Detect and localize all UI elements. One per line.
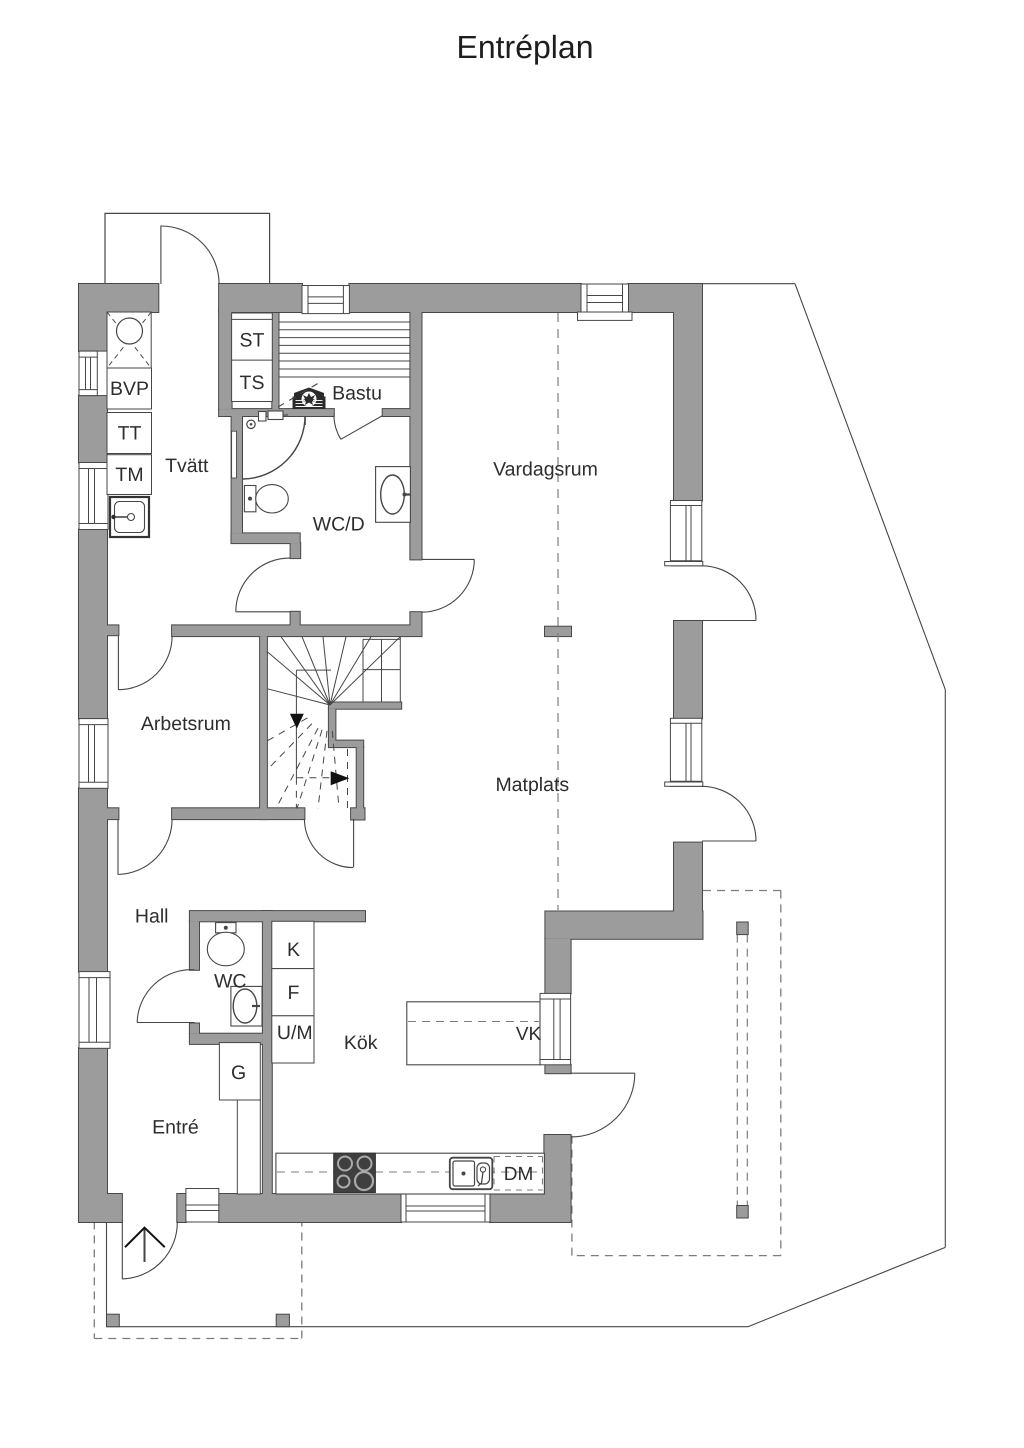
svg-text:Hall: Hall [135, 906, 169, 928]
svg-text:G: G [231, 1062, 246, 1084]
svg-text:WC/D: WC/D [313, 514, 365, 536]
svg-text:Tvätt: Tvätt [165, 455, 209, 477]
svg-text:U/M: U/M [277, 1022, 313, 1044]
svg-text:K: K [287, 939, 300, 961]
svg-text:Bastu: Bastu [332, 383, 382, 405]
svg-text:Entréplan: Entréplan [457, 29, 594, 65]
svg-text:WC: WC [214, 971, 247, 993]
svg-text:VK: VK [516, 1024, 542, 1045]
svg-text:Kök: Kök [344, 1032, 378, 1054]
svg-text:DM: DM [504, 1164, 534, 1185]
svg-text:F: F [288, 982, 300, 1004]
svg-text:BVP: BVP [110, 378, 149, 400]
svg-text:ST: ST [240, 330, 265, 352]
svg-text:Arbetsrum: Arbetsrum [141, 713, 231, 735]
svg-text:Matplats: Matplats [495, 774, 569, 796]
svg-text:TM: TM [115, 464, 143, 486]
svg-text:TS: TS [240, 372, 265, 394]
svg-text:Vardagsrum: Vardagsrum [493, 459, 598, 481]
svg-text:Entré: Entré [152, 1116, 199, 1138]
svg-text:TT: TT [118, 423, 142, 445]
